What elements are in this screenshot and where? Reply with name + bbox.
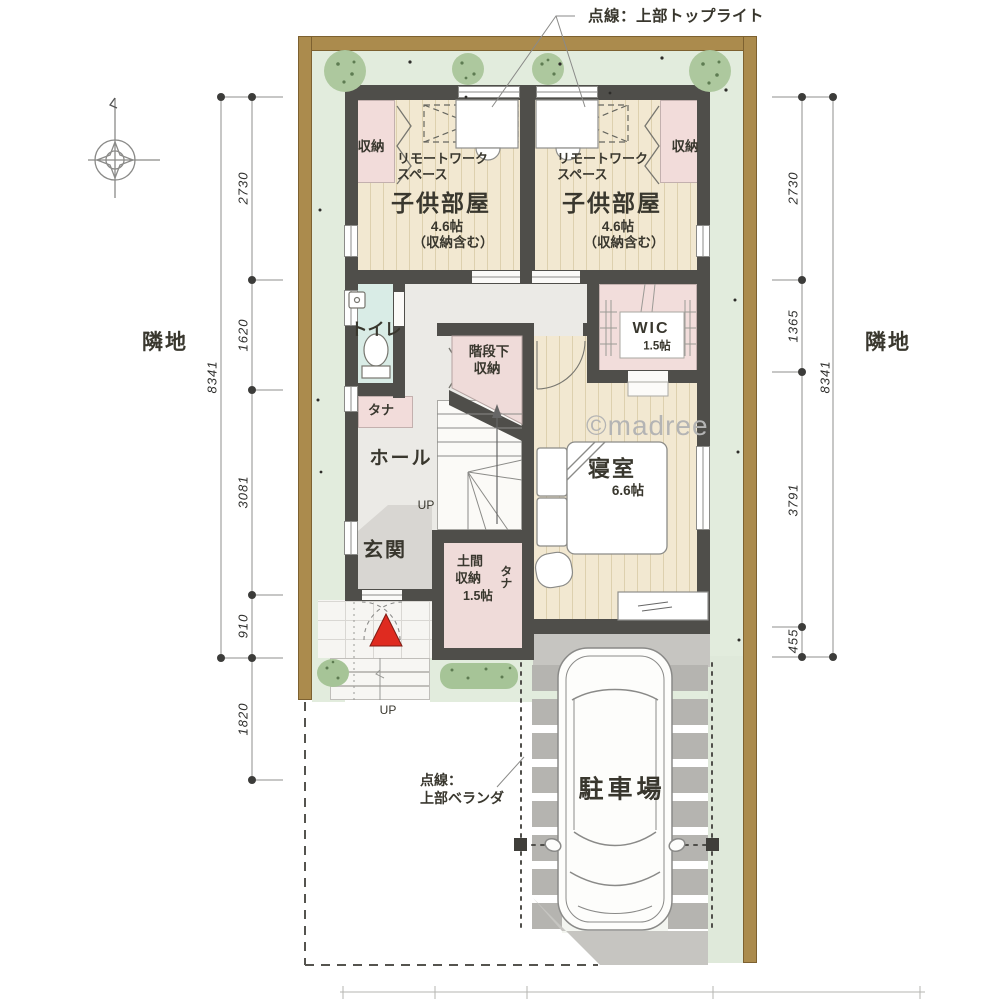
wall-right [697, 85, 710, 634]
dim-left-seg-3: 910 [236, 614, 251, 639]
doma-label-2: 収納 [455, 572, 481, 587]
child2-remote-label: リモートワーク スペース [557, 151, 648, 184]
bedroom-size-label: 6.6帖 [612, 483, 644, 499]
parking-stripes-right [668, 665, 708, 933]
child1-size: 4.6帖 [431, 219, 463, 235]
window-top-child1 [458, 86, 520, 98]
child2-size: 4.6帖 [602, 219, 634, 235]
porch-up-label: UP [380, 704, 397, 718]
child1-remote-label: リモートワーク スペース [397, 151, 488, 184]
neighbor-right-label: 隣地 [865, 331, 911, 355]
porch-tiles [318, 600, 432, 658]
porch-step-3 [330, 686, 430, 700]
stair-storage-label-2: 収納 [474, 361, 501, 377]
hall-label: ホール [369, 448, 432, 470]
wall-bedroom-bottom [530, 619, 710, 634]
dim-left-seg-4: 1820 [236, 703, 251, 736]
wall-stair-storage-top [437, 323, 534, 336]
balcony-post-left [514, 838, 527, 851]
shelf-tana-1-label: タナ [368, 404, 394, 419]
door-wic [628, 371, 668, 382]
door-child-room-1 [472, 271, 520, 283]
watermark: ©madree [586, 408, 709, 443]
porch-step-2 [330, 672, 430, 686]
wic-label: WIC [632, 320, 669, 338]
yard-green-right-strip [708, 656, 743, 963]
dim-right-total: 8341 [818, 361, 833, 394]
stairs-up-label: UP [418, 499, 435, 513]
bedroom-label: 寝室 [588, 456, 636, 481]
closet-1-label: 収納 [358, 139, 385, 155]
floor-plan: 点線：上部トップライト リモートワーク スペース リモートワーク スペース 収納… [0, 0, 1000, 1000]
window-left-shelf [344, 386, 358, 412]
door-child-room-2 [532, 271, 580, 283]
skylight-note: 点線：上部トップライト [588, 7, 764, 26]
child2-note: （収納含む） [584, 235, 665, 251]
wall-band-middle [345, 270, 710, 284]
wall-doma-left [432, 543, 444, 660]
neighbor-left-label: 隣地 [142, 331, 188, 355]
window-top-child2 [536, 86, 598, 98]
wall-under-stairs [432, 530, 522, 543]
dim-left-seg-0: 2730 [236, 172, 251, 205]
wic-size-label: 1.5帖 [643, 340, 671, 353]
dim-right-seg-1: 1365 [786, 310, 801, 343]
wall-wic-left [587, 284, 599, 383]
parking-label: 駐車場 [578, 776, 665, 805]
dim-right-seg-2: 3791 [786, 484, 801, 517]
dim-right-seg-3: 455 [786, 629, 801, 654]
entrance-label: 玄関 [363, 540, 407, 563]
compass-icon [88, 98, 160, 198]
child2-name: 子供部屋 [562, 190, 662, 216]
dim-left-total: 8341 [205, 361, 220, 394]
doma-label-1: 土間 [457, 555, 483, 570]
wall-stairs-right [522, 336, 534, 648]
parking-stripes-left [532, 665, 562, 933]
window-right-child2 [696, 225, 710, 257]
site-frame-top [298, 36, 757, 51]
closet-2-label: 収納 [672, 139, 699, 155]
dim-left-seg-1: 1620 [236, 319, 251, 352]
window-right-bedroom [696, 446, 710, 530]
child1-name: 子供部屋 [391, 190, 491, 216]
stair-storage-label-1: 階段下 [469, 344, 510, 360]
site-frame-right [743, 36, 757, 963]
wall-divider-child-rooms [520, 85, 535, 284]
shelf-tana-2-label: タナ [498, 565, 512, 589]
stairs-area [437, 400, 522, 530]
porch-step-1 [330, 658, 430, 672]
wall-doma-bottom [432, 648, 534, 660]
balcony-note: 点線： 上部ベランダ [420, 772, 504, 807]
dim-right-seg-0: 2730 [786, 172, 801, 205]
window-left-child1 [344, 225, 358, 257]
doma-label-3: 1.5帖 [463, 589, 493, 603]
child1-note: （収納含む） [413, 235, 494, 251]
door-entrance [362, 590, 402, 600]
toilet-label: トイレ [351, 320, 402, 340]
window-left-hall [344, 521, 358, 555]
dim-left-seg-2: 3081 [236, 476, 251, 509]
site-frame-left [298, 36, 312, 700]
parking-concrete-band [533, 631, 710, 667]
